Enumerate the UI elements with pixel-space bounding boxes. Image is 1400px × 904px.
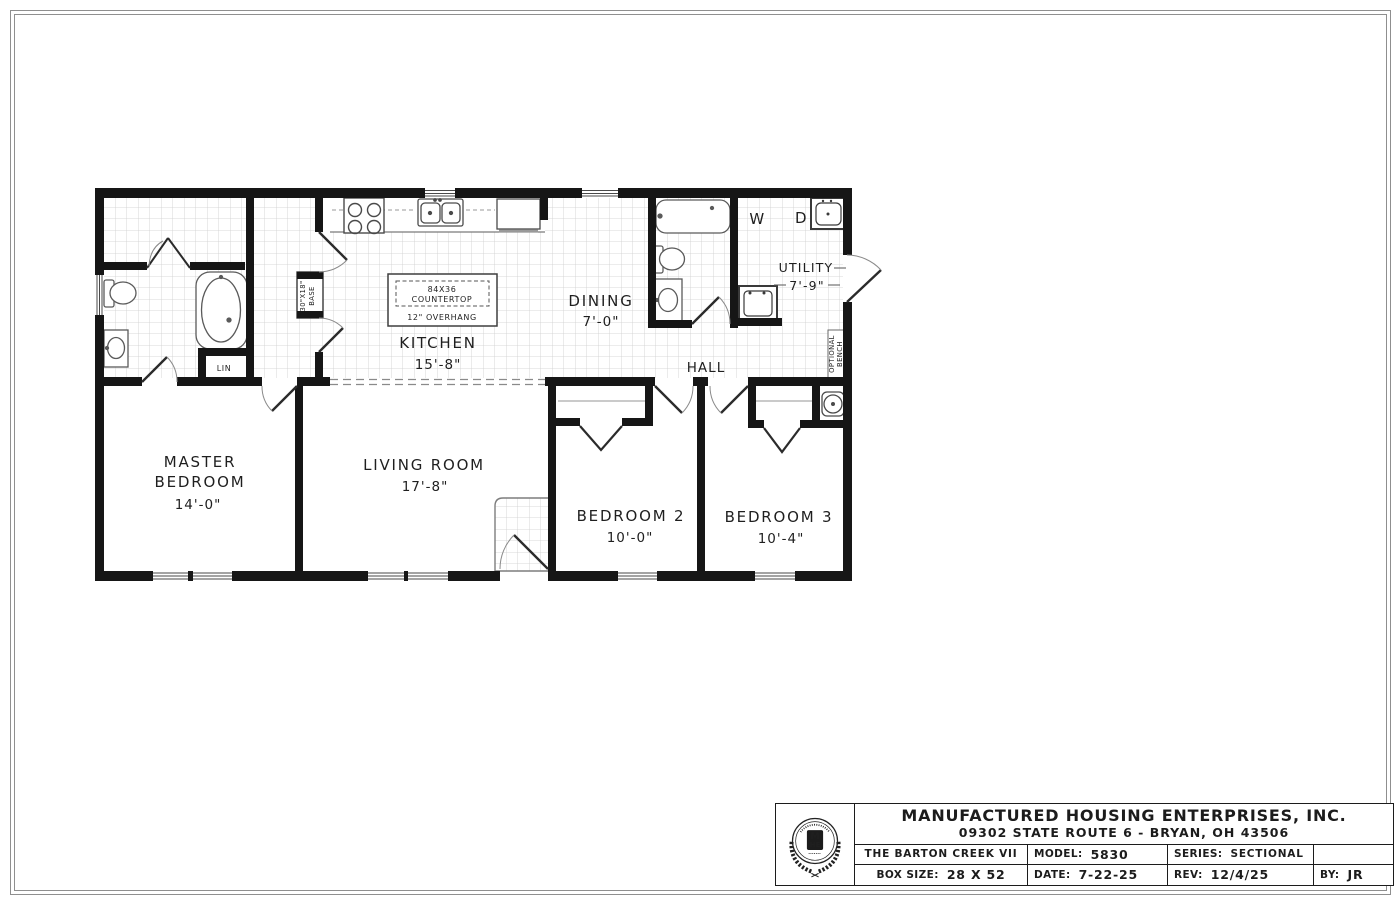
dryer-label: D [795, 209, 807, 227]
utility-dim: 7'-9" [789, 278, 825, 293]
plan-name-cell: THE BARTON CREEK VII [855, 845, 1028, 864]
by-label: BY: [1320, 869, 1340, 881]
model-label: MODEL: [1034, 848, 1083, 860]
linen-label: LIN [217, 364, 232, 373]
island-overhang-label: 12" OVERHANG [407, 313, 477, 322]
vanity-sink [108, 338, 125, 359]
floor-plan: 84X36 COUNTERTOP 12" OVERHANG [0, 0, 1400, 904]
rev-label: REV: [1174, 869, 1203, 881]
kitchen-label: KITCHEN [399, 334, 477, 352]
washer-label: W [749, 210, 764, 228]
refrigerator [497, 199, 540, 231]
title-block-header: MANUFACTURED HOUSING ENTERPRISES, INC. 0… [855, 804, 1393, 845]
date-value: 7-22-25 [1079, 867, 1138, 882]
water-heater [820, 390, 846, 418]
bedroom2-dim: 10'-0" [607, 530, 654, 546]
dining-label: DINING [568, 292, 633, 310]
living-room-label: LIVING ROOM [363, 456, 485, 474]
date-cell: DATE: 7-22-25 [1028, 865, 1168, 886]
bifold-door-bedroom3 [764, 428, 800, 452]
laundry-tub-basin [744, 291, 772, 316]
date-label: DATE: [1034, 869, 1071, 881]
closet-details [558, 401, 812, 452]
kitchen-sink [418, 199, 463, 226]
bedroom3-dim: 10'-4" [758, 531, 805, 547]
living-room-dim: 17'-8" [402, 479, 449, 495]
kitchen-island: 84X36 COUNTERTOP 12" OVERHANG [388, 274, 497, 326]
garden-tub-basin [202, 278, 241, 342]
bench-label-line1: OPTIONAL [828, 335, 836, 373]
island-countertop-label: COUNTERTOP [412, 295, 473, 304]
title-block-row-2: BOX SIZE: 28 X 52 DATE: 7-22-25 REV: 12/… [855, 865, 1393, 886]
tub-drain [227, 318, 231, 322]
base-cabinet-label-line2: BASE [308, 286, 316, 306]
model-cell: MODEL: 5830 [1028, 845, 1168, 864]
title-block-main: MANUFACTURED HOUSING ENTERPRISES, INC. 0… [855, 804, 1393, 885]
kitchen-dim: 15'-8" [415, 357, 462, 373]
logo-monogram-bottom: HE [810, 840, 821, 849]
bath2-toilet-bowl [660, 248, 685, 270]
hall-label: HALL [687, 360, 725, 376]
box-size-value: 28 X 52 [947, 867, 1006, 882]
marriage-line [330, 380, 545, 385]
bedroom3-label: BEDROOM 3 [725, 508, 834, 526]
bifold-door-bedroom2 [580, 426, 622, 450]
utility-label: UTILITY [779, 260, 834, 275]
company-logo: M HE [776, 804, 855, 885]
base-cabinet-label-line1: 30"X18" [299, 280, 307, 311]
rev-cell: REV: 12/4/25 [1168, 865, 1314, 886]
series-cell: SERIES: SECTIONAL [1168, 845, 1314, 864]
dining-dim: 7'-0" [583, 314, 620, 330]
empty-cell [1314, 845, 1393, 864]
bedroom3-door [710, 386, 748, 413]
master-bedroom-door [262, 386, 297, 411]
box-size-cell: BOX SIZE: 28 X 52 [855, 865, 1028, 886]
by-cell: BY: JR [1314, 865, 1393, 886]
box-size-label: BOX SIZE: [876, 869, 938, 881]
plan-name: THE BARTON CREEK VII [865, 848, 1018, 860]
company-name: MANUFACTURED HOUSING ENTERPRISES, INC. [855, 806, 1393, 825]
master-bedroom-label-line2: BEDROOM [155, 473, 246, 491]
island-size-label: 84X36 [428, 285, 457, 294]
mhe-logo-icon: M HE [779, 806, 851, 884]
title-block: M HE MANUFACTURED HOUSING ENTERPRISES, I… [775, 803, 1394, 886]
series-label: SERIES: [1174, 848, 1222, 860]
tub-faucet [220, 276, 223, 279]
bench-label-line2: BENCH [836, 341, 844, 367]
bedroom2-door [655, 386, 693, 413]
utility-exterior-door [847, 255, 881, 302]
master-bedroom-label-line1: MASTER [164, 453, 237, 471]
by-value: JR [1348, 867, 1364, 882]
series-value: SECTIONAL [1230, 848, 1303, 860]
title-block-row-1: THE BARTON CREEK VII MODEL: 5830 SERIES:… [855, 845, 1393, 865]
bedroom2-label: BEDROOM 2 [577, 507, 686, 525]
bath2-tub-faucet [658, 214, 662, 218]
faucet-dot [106, 347, 109, 350]
entry-landing [495, 498, 552, 571]
company-address: 09302 STATE ROUTE 6 - BRYAN, OH 43506 [855, 825, 1393, 840]
bath2-tub [656, 200, 730, 233]
bath2-vanity-sink [659, 289, 678, 312]
toilet-bowl [110, 282, 136, 304]
master-bedroom-dim: 14'-0" [175, 497, 222, 513]
range [344, 198, 384, 234]
rev-value: 12/4/25 [1211, 867, 1269, 882]
bath2-tub-drain [711, 207, 714, 210]
model-value: 5830 [1091, 847, 1129, 862]
